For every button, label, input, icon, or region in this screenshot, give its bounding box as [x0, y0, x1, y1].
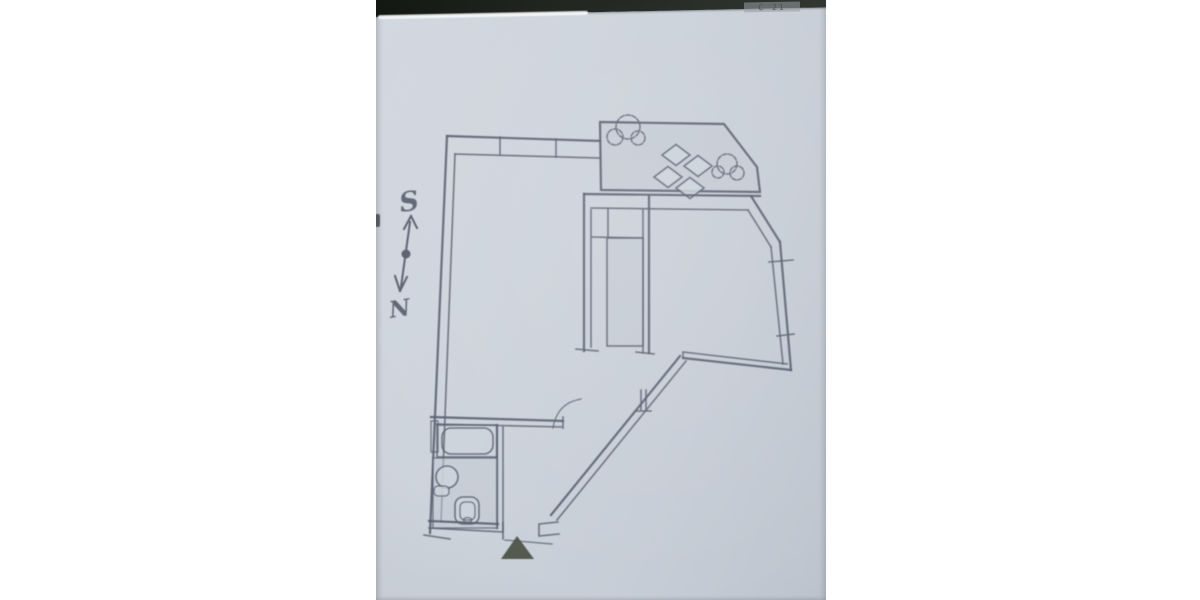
chamfer-inner [748, 210, 771, 247]
stair-left-foot [576, 349, 598, 351]
terrace [600, 115, 760, 199]
bathtub-icon [442, 428, 493, 454]
diagonal-wall-inner [557, 361, 686, 520]
top-wall-outer [447, 136, 600, 141]
floorplan-photo: C 21 S N [376, 0, 826, 600]
mid-wall-outer [584, 194, 760, 196]
staircase [607, 238, 643, 346]
top-wall-inner [455, 154, 600, 158]
bottom-wall-inner [683, 352, 787, 364]
compass-south-label: S [397, 185, 421, 219]
mid-wall-inner [591, 208, 748, 210]
bottom-wall-outer [683, 358, 791, 370]
washbasin-pedestal [434, 486, 449, 496]
diagonal-wall-outer [551, 356, 680, 515]
door-swing-arc [553, 399, 581, 428]
chamfer-outer [751, 196, 780, 242]
floor-plan-drawing: S N [376, 0, 826, 600]
bath-top-wall-outer [431, 417, 563, 421]
diagonal-wall-foot [539, 522, 559, 536]
stair-right-foot [636, 352, 654, 354]
stair-landing-lines [592, 209, 643, 238]
compass: S N [386, 185, 421, 324]
compass-north-label: N [386, 294, 413, 324]
compass-pivot-dot [402, 250, 411, 259]
left-wall-foot [424, 535, 450, 539]
page: C 21 S N [0, 0, 1200, 600]
washbasin-icon [436, 466, 458, 488]
